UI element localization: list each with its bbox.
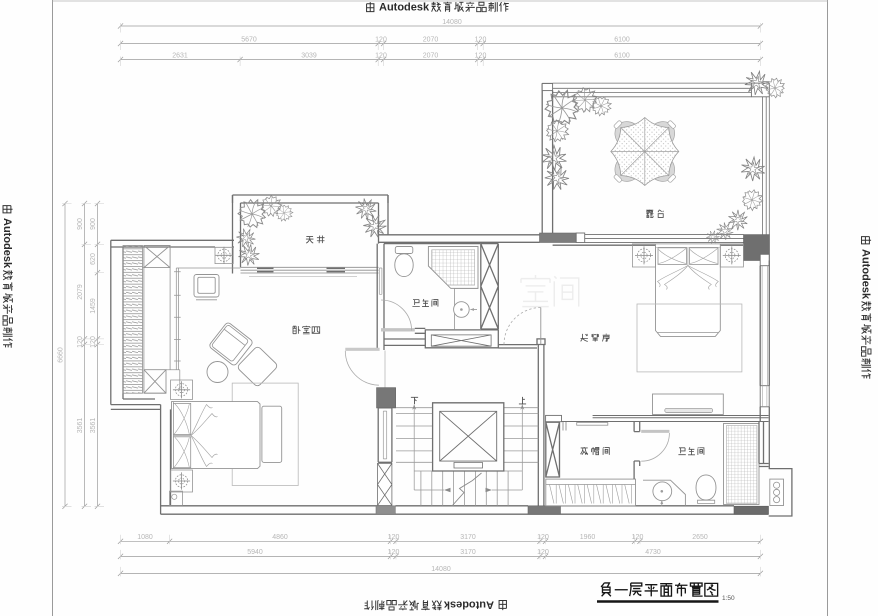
svg-text:2070: 2070 xyxy=(423,52,439,59)
svg-text:120: 120 xyxy=(537,549,549,556)
svg-text:4730: 4730 xyxy=(645,549,661,556)
svg-text:120: 120 xyxy=(388,549,400,556)
svg-text:4860: 4860 xyxy=(272,534,288,541)
svg-text:5670: 5670 xyxy=(241,36,257,43)
svg-text:620: 620 xyxy=(90,253,97,265)
svg-text:Autodesk: Autodesk xyxy=(443,599,494,611)
svg-text:2631: 2631 xyxy=(172,52,188,59)
svg-text:2079: 2079 xyxy=(77,284,84,300)
svg-text:120: 120 xyxy=(475,36,487,43)
svg-text:2070: 2070 xyxy=(423,36,439,43)
svg-text:1960: 1960 xyxy=(580,534,596,541)
svg-text:1080: 1080 xyxy=(137,534,153,541)
svg-text:14080: 14080 xyxy=(442,19,462,26)
svg-text:3039: 3039 xyxy=(301,52,317,59)
svg-text:1:50: 1:50 xyxy=(722,595,735,602)
svg-text:6100: 6100 xyxy=(614,52,630,59)
svg-text:900: 900 xyxy=(90,218,97,230)
svg-text:120: 120 xyxy=(375,36,387,43)
svg-text:120: 120 xyxy=(537,534,549,541)
svg-text:3561: 3561 xyxy=(90,418,97,434)
svg-text:120: 120 xyxy=(632,534,644,541)
svg-text:3170: 3170 xyxy=(460,534,476,541)
svg-text:6660: 6660 xyxy=(58,347,65,363)
svg-text:120: 120 xyxy=(475,52,487,59)
svg-text:Autodesk: Autodesk xyxy=(860,249,872,300)
svg-text:3170: 3170 xyxy=(460,549,476,556)
svg-text:3561: 3561 xyxy=(77,418,84,434)
svg-text:14080: 14080 xyxy=(431,566,451,573)
svg-text:Autodesk: Autodesk xyxy=(379,2,430,14)
svg-text:120: 120 xyxy=(388,534,400,541)
svg-text:2650: 2650 xyxy=(692,534,708,541)
svg-text:120: 120 xyxy=(77,336,84,348)
svg-text:5940: 5940 xyxy=(247,549,263,556)
svg-text:120: 120 xyxy=(90,336,97,348)
svg-text:900: 900 xyxy=(77,218,84,230)
svg-text:120: 120 xyxy=(375,52,387,59)
svg-text:1459: 1459 xyxy=(90,298,97,314)
svg-text:Autodesk: Autodesk xyxy=(1,218,13,269)
svg-text:6100: 6100 xyxy=(614,36,630,43)
